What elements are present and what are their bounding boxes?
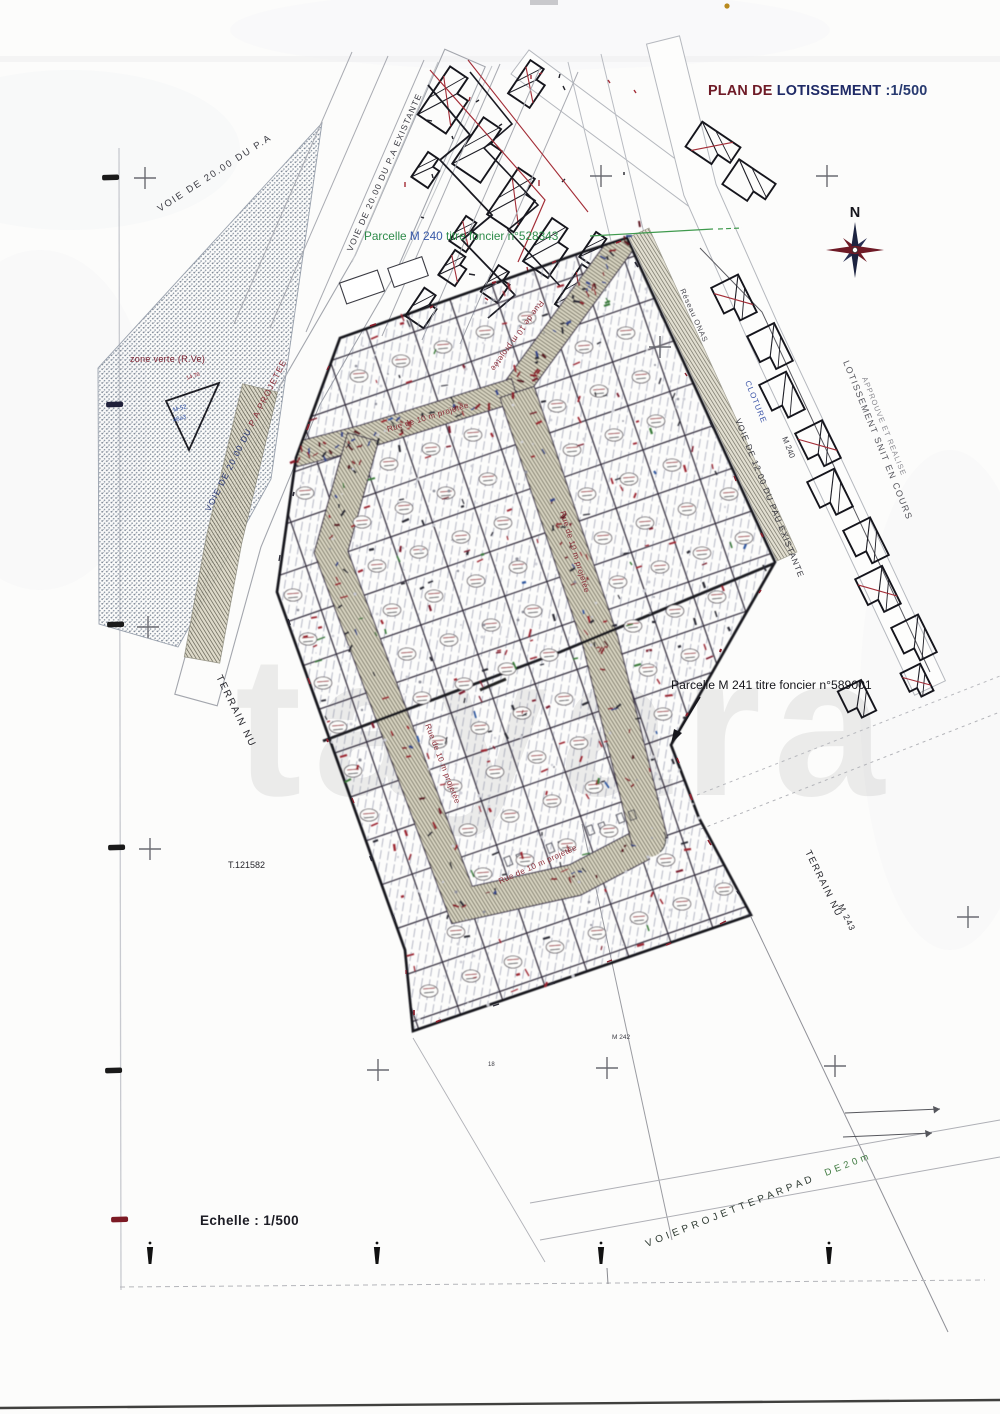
svg-text:T.121582: T.121582 (228, 860, 265, 870)
svg-text:N: N (850, 205, 860, 221)
svg-text:zone verte (R.Ve): zone verte (R.Ve) (130, 354, 205, 364)
svg-text:18: 18 (488, 1062, 495, 1068)
svg-text:Parcelle M 241 titre foncier: Parcelle M 241 titre foncier n°589001 (671, 678, 872, 692)
svg-text:Parcelle M 240 titre foncier: Parcelle M 240 titre foncier n°528343 (364, 229, 559, 243)
svg-text:Echelle : 1/500: Echelle : 1/500 (200, 1213, 299, 1228)
svg-text:PLAN DE LOTISSEMENT :1/500: PLAN DE LOTISSEMENT :1/500 (708, 83, 928, 99)
svg-text:M 242: M 242 (612, 1034, 630, 1041)
